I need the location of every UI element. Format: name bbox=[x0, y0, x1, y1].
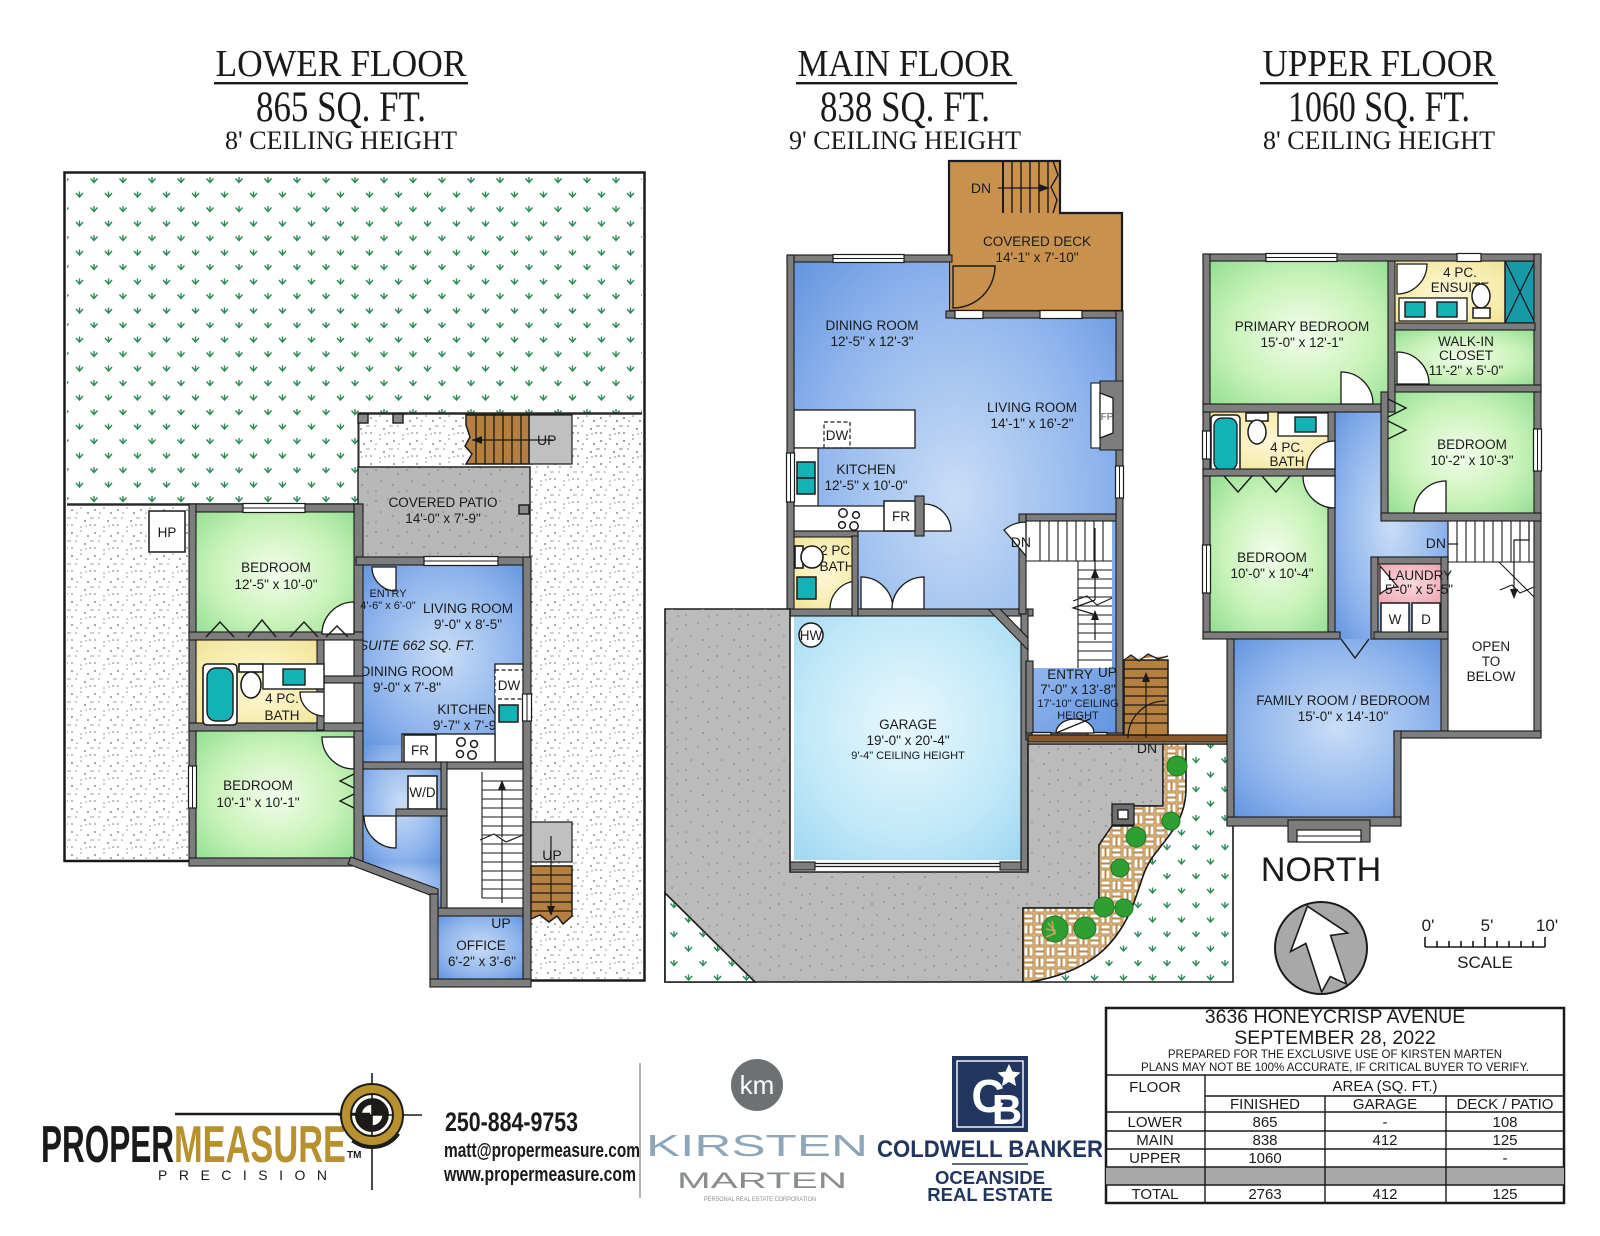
svg-text:10'-2" x 10'-3": 10'-2" x 10'-3" bbox=[1430, 453, 1513, 468]
svg-text:GARAGE: GARAGE bbox=[879, 717, 937, 732]
svg-text:838: 838 bbox=[1252, 1132, 1277, 1149]
svg-text:UPPER: UPPER bbox=[1129, 1150, 1181, 1167]
svg-text:BEDROOM: BEDROOM bbox=[1437, 437, 1507, 452]
svg-text:PLANS MAY NOT BE 100% ACCURATE: PLANS MAY NOT BE 100% ACCURATE, IF CRITI… bbox=[1141, 1062, 1529, 1074]
svg-text:PRIMARY BEDROOM: PRIMARY BEDROOM bbox=[1235, 319, 1370, 334]
svg-text:865: 865 bbox=[1252, 1114, 1277, 1131]
svg-text:10': 10' bbox=[1536, 916, 1558, 935]
svg-text:TM: TM bbox=[347, 1150, 361, 1161]
svg-text:UP: UP bbox=[491, 915, 510, 931]
svg-text:8' CEILING HEIGHT: 8' CEILING HEIGHT bbox=[1263, 125, 1495, 155]
svg-text:10'-1" x 10'-1": 10'-1" x 10'-1" bbox=[216, 795, 299, 810]
svg-text:12'-5" x 10'-0": 12'-5" x 10'-0" bbox=[824, 478, 907, 493]
svg-text:KIRSTEN: KIRSTEN bbox=[646, 1128, 868, 1163]
svg-text:BEDROOM: BEDROOM bbox=[1237, 550, 1307, 565]
svg-text:DN: DN bbox=[1426, 535, 1446, 551]
svg-text:SUITE 662 SQ. FT.: SUITE 662 SQ. FT. bbox=[359, 638, 475, 653]
svg-text:14'-1" x 7'-10": 14'-1" x 7'-10" bbox=[995, 250, 1078, 265]
svg-text:ENTRY: ENTRY bbox=[1047, 667, 1093, 682]
svg-text:0': 0' bbox=[1422, 916, 1435, 935]
svg-text:4 PC.: 4 PC. bbox=[1443, 265, 1477, 280]
svg-text:-: - bbox=[1383, 1114, 1388, 1131]
svg-text:9'-4" CEILING HEIGHT: 9'-4" CEILING HEIGHT bbox=[851, 750, 965, 762]
svg-text:DN: DN bbox=[971, 180, 991, 196]
svg-text:HEIGHT: HEIGHT bbox=[1057, 710, 1099, 722]
svg-text:AREA (SQ. FT.): AREA (SQ. FT.) bbox=[1332, 1078, 1437, 1095]
svg-text:UP: UP bbox=[542, 847, 561, 863]
svg-text:NORTH: NORTH bbox=[1261, 851, 1381, 889]
svg-text:11'-2" x 5'-0": 11'-2" x 5'-0" bbox=[1429, 363, 1504, 378]
svg-text:14'-0" x 7'-9": 14'-0" x 7'-9" bbox=[405, 511, 481, 526]
svg-text:TO: TO bbox=[1482, 654, 1501, 669]
svg-text:125: 125 bbox=[1492, 1186, 1517, 1203]
svg-text:4'-6" x 6'-0": 4'-6" x 6'-0" bbox=[360, 600, 416, 612]
svg-text:BATH: BATH bbox=[819, 559, 854, 574]
svg-text:COVERED DECK: COVERED DECK bbox=[983, 234, 1091, 249]
svg-text:12'-5" x 10'-0": 12'-5" x 10'-0" bbox=[234, 577, 317, 592]
svg-text:FR: FR bbox=[892, 509, 910, 524]
svg-text:PREPARED FOR THE EXCLUSIVE USE: PREPARED FOR THE EXCLUSIVE USE OF KIRSTE… bbox=[1168, 1049, 1502, 1061]
svg-text:LOWER: LOWER bbox=[1127, 1114, 1182, 1131]
svg-text:DW: DW bbox=[498, 678, 521, 693]
svg-text:838 SQ. FT.: 838 SQ. FT. bbox=[820, 84, 990, 131]
svg-text:BELOW: BELOW bbox=[1467, 669, 1516, 684]
svg-text:MARTEN: MARTEN bbox=[677, 1168, 847, 1193]
svg-text:matt@propermeasure.com: matt@propermeasure.com bbox=[444, 1140, 640, 1162]
svg-text:PERSONAL REAL ESTATE CORPORATI: PERSONAL REAL ESTATE CORPORATION bbox=[704, 1196, 816, 1203]
svg-text:BATH: BATH bbox=[1269, 454, 1304, 469]
svg-text:HW: HW bbox=[800, 628, 823, 643]
svg-text:9'-0" x 8'-5": 9'-0" x 8'-5" bbox=[434, 617, 502, 632]
svg-text:FAMILY ROOM / BEDROOM: FAMILY ROOM / BEDROOM bbox=[1256, 693, 1430, 708]
svg-text:SCALE: SCALE bbox=[1457, 953, 1513, 972]
svg-text:7'-0" x 13'-8": 7'-0" x 13'-8" bbox=[1040, 682, 1116, 697]
svg-text:KITCHEN: KITCHEN bbox=[836, 462, 895, 477]
svg-text:PROPER: PROPER bbox=[41, 1116, 174, 1174]
svg-text:FR: FR bbox=[411, 743, 429, 758]
svg-text:GARAGE: GARAGE bbox=[1353, 1096, 1417, 1113]
svg-text:W/D: W/D bbox=[409, 785, 435, 800]
svg-text:TOTAL: TOTAL bbox=[1132, 1186, 1179, 1203]
svg-text:LAUNDRY: LAUNDRY bbox=[1388, 568, 1452, 583]
svg-text:REAL ESTATE: REAL ESTATE bbox=[927, 1184, 1052, 1205]
svg-text:412: 412 bbox=[1372, 1186, 1397, 1203]
svg-text:250-884-9753: 250-884-9753 bbox=[445, 1107, 578, 1137]
svg-text:125: 125 bbox=[1492, 1132, 1517, 1149]
svg-text:15'-0" x 14'-10": 15'-0" x 14'-10" bbox=[1298, 709, 1389, 724]
svg-text:COLDWELL BANKER: COLDWELL BANKER bbox=[877, 1136, 1103, 1163]
svg-text:2 PC.: 2 PC. bbox=[820, 543, 854, 558]
svg-text:412: 412 bbox=[1372, 1132, 1397, 1149]
svg-text:BEDROOM: BEDROOM bbox=[241, 560, 311, 575]
svg-text:LIVING ROOM: LIVING ROOM bbox=[423, 601, 513, 616]
svg-text:12'-5" x 12'-3": 12'-5" x 12'-3" bbox=[830, 334, 913, 349]
svg-text:9'-7" x 7'-9": 9'-7" x 7'-9" bbox=[433, 718, 501, 733]
svg-text:17'-10" CEILING: 17'-10" CEILING bbox=[1037, 698, 1118, 710]
svg-text:FINISHED: FINISHED bbox=[1230, 1096, 1300, 1113]
svg-text:BEDROOM: BEDROOM bbox=[223, 778, 293, 793]
svg-text:km: km bbox=[740, 1070, 775, 1100]
svg-text:DN: DN bbox=[1137, 740, 1157, 756]
svg-text:9' CEILING HEIGHT: 9' CEILING HEIGHT bbox=[789, 125, 1021, 155]
svg-text:COVERED PATIO: COVERED PATIO bbox=[388, 495, 497, 510]
svg-text:DW: DW bbox=[826, 428, 849, 443]
svg-text:1060 SQ. FT.: 1060 SQ. FT. bbox=[1288, 84, 1470, 131]
svg-text:OFFICE: OFFICE bbox=[456, 938, 506, 953]
svg-text:KITCHEN: KITCHEN bbox=[437, 702, 496, 717]
svg-text:www.propermeasure.com: www.propermeasure.com bbox=[443, 1164, 636, 1186]
svg-text:4 PC.: 4 PC. bbox=[1270, 440, 1304, 455]
svg-text:MEASURE: MEASURE bbox=[174, 1116, 346, 1174]
svg-text:DINING ROOM: DINING ROOM bbox=[361, 664, 454, 679]
svg-text:DECK / PATIO: DECK / PATIO bbox=[1457, 1096, 1554, 1113]
svg-text:W: W bbox=[1389, 612, 1402, 627]
svg-text:FP: FP bbox=[1101, 412, 1114, 423]
svg-text:UP: UP bbox=[1098, 665, 1117, 680]
svg-text:UP: UP bbox=[537, 432, 556, 448]
svg-text:3636 HONEYCRISP AVENUE: 3636 HONEYCRISP AVENUE bbox=[1205, 1006, 1465, 1028]
svg-text:UPPER FLOOR: UPPER FLOOR bbox=[1263, 43, 1497, 85]
svg-text:4 PC.: 4 PC. bbox=[265, 691, 299, 706]
svg-text:DN: DN bbox=[1011, 534, 1031, 550]
svg-text:19'-0" x 20'-4": 19'-0" x 20'-4" bbox=[866, 733, 949, 748]
svg-text:6'-2" x 3'-6": 6'-2" x 3'-6" bbox=[448, 954, 516, 969]
svg-text:LIVING ROOM: LIVING ROOM bbox=[987, 400, 1077, 415]
svg-text:2763: 2763 bbox=[1248, 1186, 1281, 1203]
svg-text:OPEN: OPEN bbox=[1472, 639, 1510, 654]
svg-text:LOWER FLOOR: LOWER FLOOR bbox=[216, 43, 468, 85]
svg-text:-: - bbox=[1503, 1150, 1508, 1167]
svg-text:CLOSET: CLOSET bbox=[1439, 348, 1493, 363]
svg-text:MAIN: MAIN bbox=[1136, 1132, 1174, 1149]
svg-text:PRECISION: PRECISION bbox=[158, 1167, 339, 1183]
svg-text:MAIN FLOOR: MAIN FLOOR bbox=[798, 43, 1014, 85]
svg-text:9'-0" x 7'-8": 9'-0" x 7'-8" bbox=[373, 680, 441, 695]
svg-text:D: D bbox=[1421, 612, 1431, 627]
svg-text:FLOOR: FLOOR bbox=[1129, 1079, 1181, 1096]
svg-text:HP: HP bbox=[158, 525, 177, 540]
svg-text:14'-1" x 16'-2": 14'-1" x 16'-2" bbox=[990, 416, 1073, 431]
svg-text:108: 108 bbox=[1492, 1114, 1517, 1131]
svg-text:B: B bbox=[992, 1086, 1022, 1133]
svg-text:ENTRY: ENTRY bbox=[369, 588, 407, 600]
svg-text:WALK-IN: WALK-IN bbox=[1438, 334, 1494, 349]
svg-text:1060: 1060 bbox=[1248, 1150, 1281, 1167]
svg-text:5': 5' bbox=[1481, 916, 1494, 935]
svg-text:BATH: BATH bbox=[264, 708, 299, 723]
svg-text:15'-0" x 12'-1": 15'-0" x 12'-1" bbox=[1260, 335, 1343, 350]
svg-text:SEPTEMBER 28, 2022: SEPTEMBER 28, 2022 bbox=[1234, 1027, 1436, 1049]
svg-text:DINING ROOM: DINING ROOM bbox=[826, 318, 919, 333]
svg-text:865 SQ. FT.: 865 SQ. FT. bbox=[256, 84, 426, 131]
svg-text:8' CEILING HEIGHT: 8' CEILING HEIGHT bbox=[225, 125, 457, 155]
svg-text:5'-0" x 5'-5": 5'-0" x 5'-5" bbox=[1385, 582, 1453, 597]
svg-text:10'-0" x 10'-4": 10'-0" x 10'-4" bbox=[1230, 566, 1313, 581]
